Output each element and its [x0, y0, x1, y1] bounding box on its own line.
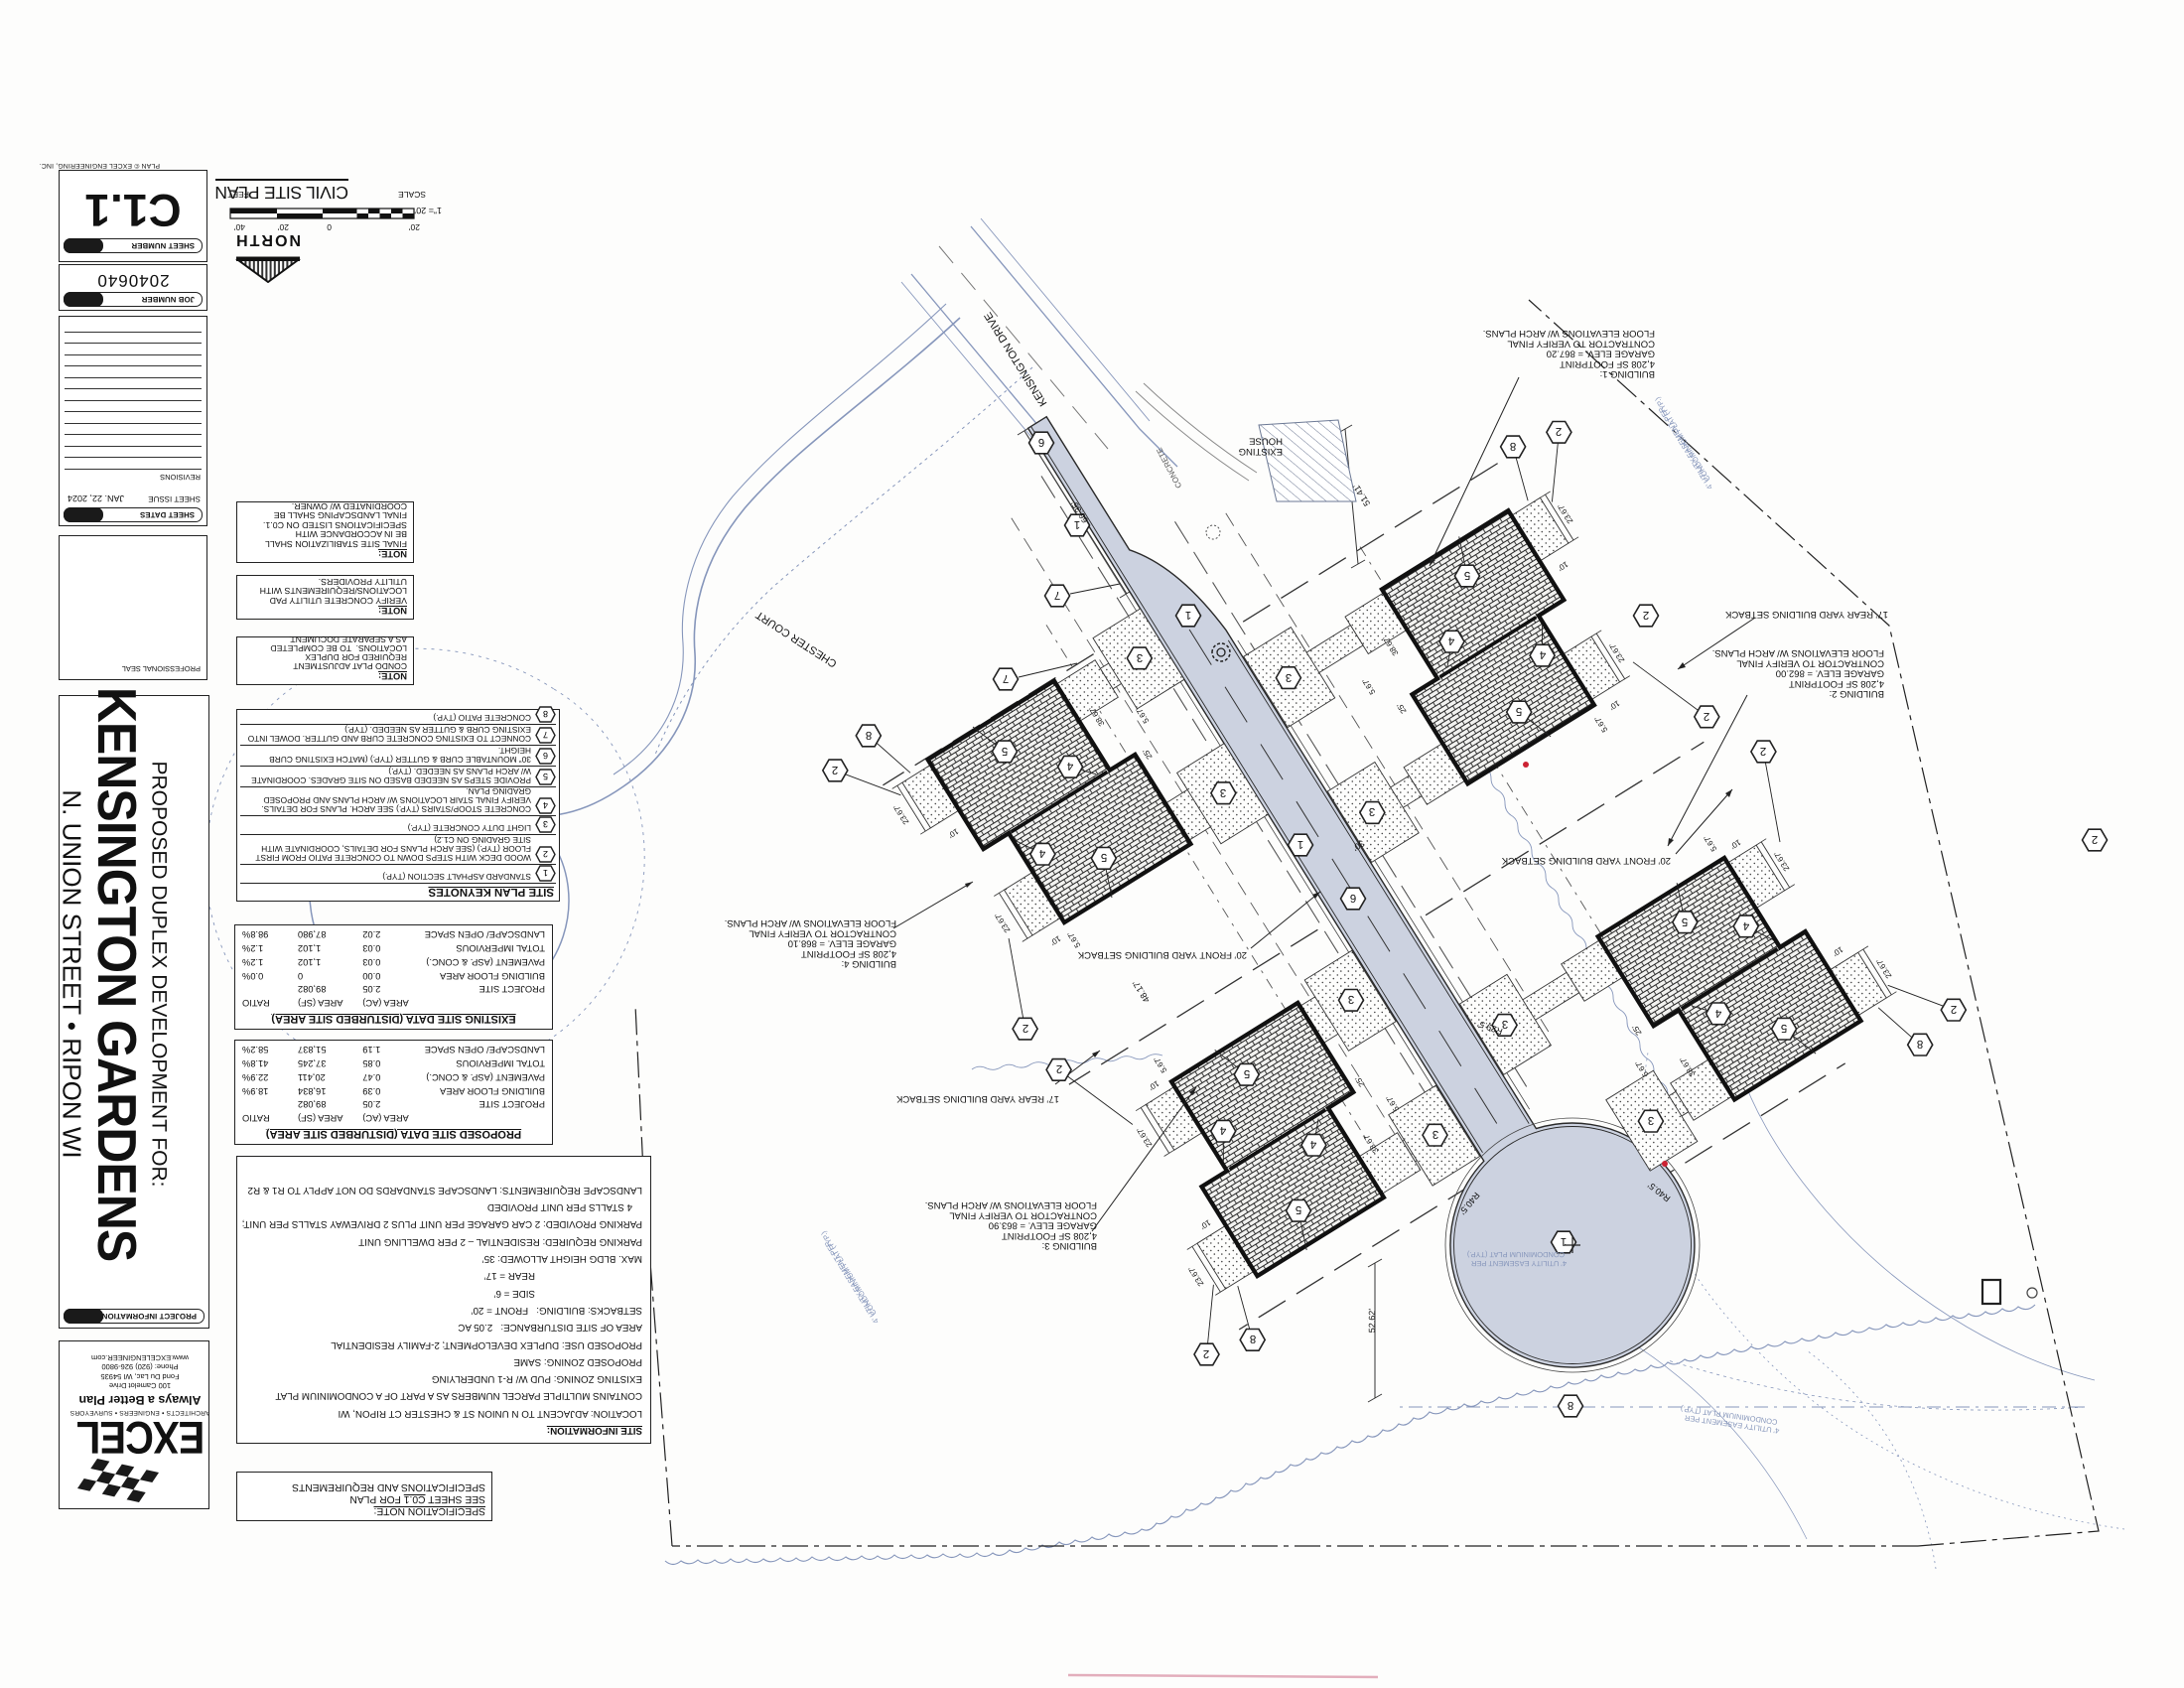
svg-text:8: 8 [1917, 1038, 1923, 1050]
svg-text:1: 1 [1185, 609, 1191, 621]
svg-text:5: 5 [1002, 745, 1008, 757]
svg-text:8: 8 [1510, 440, 1516, 452]
svg-text:2: 2 [2092, 833, 2098, 845]
svg-text:3: 3 [543, 819, 548, 829]
svg-text:5.67’: 5.67’ [1360, 676, 1377, 696]
svg-text:38.67’: 38.67’ [1678, 1055, 1697, 1078]
svg-text:5.67’: 5.67’ [1065, 929, 1082, 949]
svg-text:CONDOMINIUM PLAT (TYP.): CONDOMINIUM PLAT (TYP.) [1466, 1250, 1565, 1259]
svg-text:5.67’: 5.67’ [1592, 714, 1609, 734]
svg-text:4: 4 [543, 800, 548, 810]
svg-text:23.67’: 23.67’ [1186, 1265, 1205, 1288]
svg-text:10’: 10’ [1728, 837, 1742, 850]
svg-text:5: 5 [1244, 1067, 1250, 1079]
svg-text:8: 8 [1250, 1333, 1256, 1344]
svg-text:25’: 25’ [1141, 747, 1154, 761]
svg-text:6: 6 [1350, 892, 1356, 904]
svg-text:7: 7 [1054, 589, 1060, 601]
svg-text:25’: 25’ [1395, 701, 1408, 715]
svg-text:BUILDING 1:4,208 SF FOOTPRINTG: BUILDING 1:4,208 SF FOOTPRINTGARAGE ELEV… [1483, 328, 1655, 379]
svg-text:23.67’: 23.67’ [1135, 1126, 1154, 1149]
svg-text:5.67’: 5.67’ [1152, 1055, 1168, 1074]
svg-text:4: 4 [1714, 1007, 1721, 1019]
svg-text:10’: 10’ [1831, 944, 1844, 957]
svg-text:CONDOMINIUM PLAT (TYP.): CONDOMINIUM PLAT (TYP.) [1653, 395, 1712, 484]
svg-text:23.67’: 23.67’ [891, 803, 910, 826]
svg-text:5: 5 [1682, 915, 1688, 927]
svg-text:5: 5 [1781, 1022, 1787, 1034]
svg-text:2: 2 [1056, 1062, 1062, 1074]
svg-text:25’: 25’ [1630, 1023, 1643, 1037]
svg-text:17’ REAR YARD BUILDING SETBACK: 17’ REAR YARD BUILDING SETBACK [1724, 609, 1888, 620]
svg-text:2: 2 [1023, 1022, 1028, 1034]
svg-text:5: 5 [1296, 1203, 1301, 1215]
svg-text:23.67’: 23.67’ [1772, 850, 1791, 873]
svg-text:23.67’: 23.67’ [993, 912, 1012, 934]
svg-text:KENSINGTON DRIVE: KENSINGTON DRIVE [983, 310, 1050, 408]
svg-text:4: 4 [1447, 634, 1454, 646]
svg-text:38.67’: 38.67’ [1087, 705, 1106, 728]
svg-text:5: 5 [1464, 569, 1470, 581]
svg-text:3: 3 [1286, 671, 1292, 683]
svg-text:3: 3 [1137, 651, 1143, 663]
svg-text:CONDOMINIUM PLAT (TYP.): CONDOMINIUM PLAT (TYP.) [819, 1229, 879, 1318]
svg-text:5.67’: 5.67’ [1702, 833, 1718, 853]
svg-text:38.67’: 38.67’ [1361, 1132, 1380, 1155]
svg-text:3: 3 [1220, 786, 1226, 798]
svg-text:EXISTINGHOUSE: EXISTINGHOUSE [1239, 435, 1283, 457]
svg-text:10’: 10’ [946, 826, 960, 839]
svg-text:4: 4 [1539, 648, 1546, 660]
svg-text:17’ REAR YARD BUILDING SETBACK: 17’ REAR YARD BUILDING SETBACK [895, 1093, 1059, 1104]
svg-text:CHESTER COURT: CHESTER COURT [753, 609, 839, 670]
svg-text:BUILDING 3:4,208 SF FOOTPRINTG: BUILDING 3:4,208 SF FOOTPRINTGARAGE ELEV… [925, 1199, 1097, 1251]
svg-text:3: 3 [1348, 993, 1354, 1005]
svg-text:2: 2 [543, 849, 548, 859]
svg-text:3: 3 [1433, 1128, 1438, 1140]
svg-text:3: 3 [1648, 1114, 1654, 1126]
svg-text:20’ FRONT YARD BUILDING SETBAC: 20’ FRONT YARD BUILDING SETBACK [1077, 949, 1247, 960]
svg-text:2: 2 [1951, 1003, 1957, 1015]
svg-text:10’: 10’ [1607, 698, 1621, 711]
svg-text:5: 5 [1101, 851, 1107, 863]
svg-text:5.67’: 5.67’ [1384, 1093, 1401, 1113]
svg-text:1: 1 [1297, 838, 1303, 850]
svg-text:52.62’: 52.62’ [1367, 1309, 1377, 1334]
svg-text:23.67’: 23.67’ [1607, 641, 1626, 664]
svg-text:4’ UTILITY EASEMENT PER: 4’ UTILITY EASEMENT PER [1470, 1259, 1567, 1268]
svg-text:8: 8 [543, 709, 548, 719]
svg-text:7: 7 [1003, 672, 1009, 684]
svg-text:2: 2 [832, 764, 838, 775]
svg-text:2: 2 [1760, 745, 1766, 757]
svg-text:10’: 10’ [1198, 1217, 1212, 1230]
svg-text:48.17’: 48.17’ [1131, 979, 1152, 1005]
svg-text:4: 4 [1742, 919, 1749, 931]
svg-text:10’: 10’ [1147, 1078, 1160, 1091]
svg-text:5.67’: 5.67’ [1633, 1058, 1650, 1078]
svg-text:6: 6 [543, 751, 548, 761]
svg-text:8: 8 [866, 729, 872, 741]
svg-text:2: 2 [1704, 710, 1709, 722]
svg-text:BUILDING 4:4,208 SF FOOTPRINTG: BUILDING 4:4,208 SF FOOTPRINTGARAGE ELEV… [725, 917, 896, 969]
svg-text:8: 8 [1568, 1399, 1573, 1411]
svg-text:2: 2 [1643, 609, 1649, 621]
svg-text:2: 2 [1556, 425, 1562, 437]
svg-text:4: 4 [1038, 847, 1045, 859]
svg-text:10’: 10’ [1556, 559, 1570, 572]
svg-text:38.67’: 38.67’ [1381, 634, 1400, 657]
svg-text:4: 4 [1066, 760, 1073, 772]
svg-text:3: 3 [1369, 805, 1375, 817]
svg-text:4: 4 [1219, 1124, 1226, 1136]
svg-text:2: 2 [1203, 1347, 1209, 1359]
svg-text:20’ FRONT YARD BUILDING SETBAC: 20’ FRONT YARD BUILDING SETBACK [1501, 855, 1671, 866]
svg-text:23.67’: 23.67’ [1874, 957, 1893, 980]
svg-text:1: 1 [543, 868, 548, 878]
svg-text:BUILDING 2:4,208 SF FOOTPRINTG: BUILDING 2:4,208 SF FOOTPRINTGARAGE ELEV… [1712, 647, 1884, 699]
svg-text:4: 4 [1309, 1138, 1316, 1150]
svg-text:5: 5 [543, 772, 548, 781]
svg-text:10’: 10’ [1048, 933, 1062, 946]
svg-text:6: 6 [1038, 436, 1044, 448]
svg-text:7: 7 [543, 730, 548, 740]
svg-text:5: 5 [1516, 705, 1522, 717]
svg-text:23.67’: 23.67’ [1556, 502, 1574, 525]
svg-text:CONCRETE: CONCRETE [1155, 446, 1183, 490]
